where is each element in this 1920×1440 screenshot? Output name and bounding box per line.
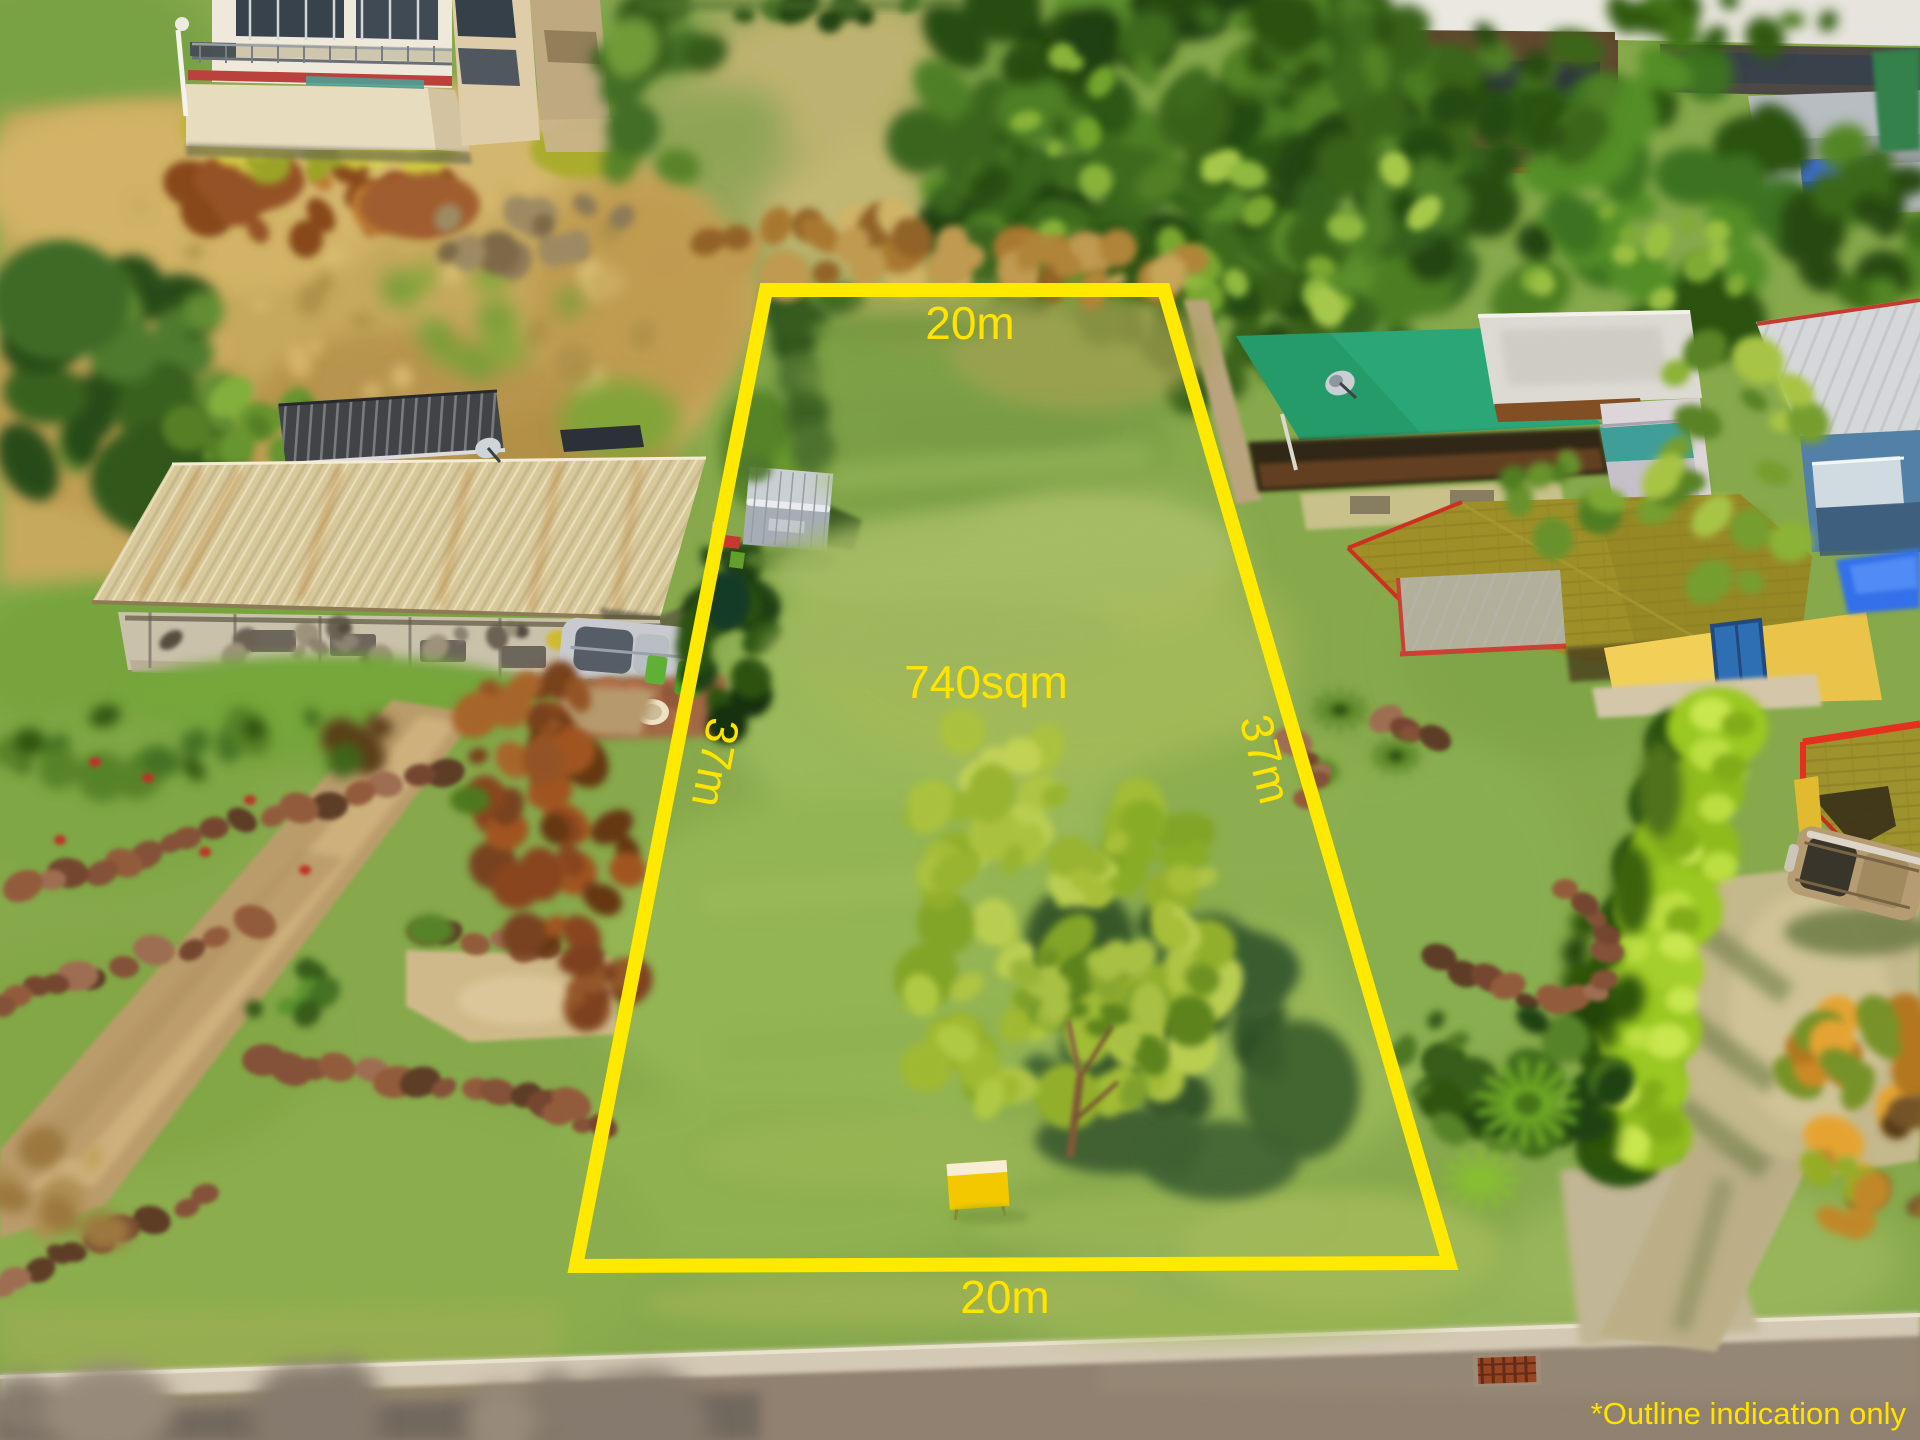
svg-text:740sqm: 740sqm [904, 656, 1068, 708]
svg-text:*Outline indication only: *Outline indication only [1591, 1396, 1907, 1431]
svg-text:20m: 20m [925, 297, 1014, 349]
svg-text:20m: 20m [960, 1271, 1049, 1323]
